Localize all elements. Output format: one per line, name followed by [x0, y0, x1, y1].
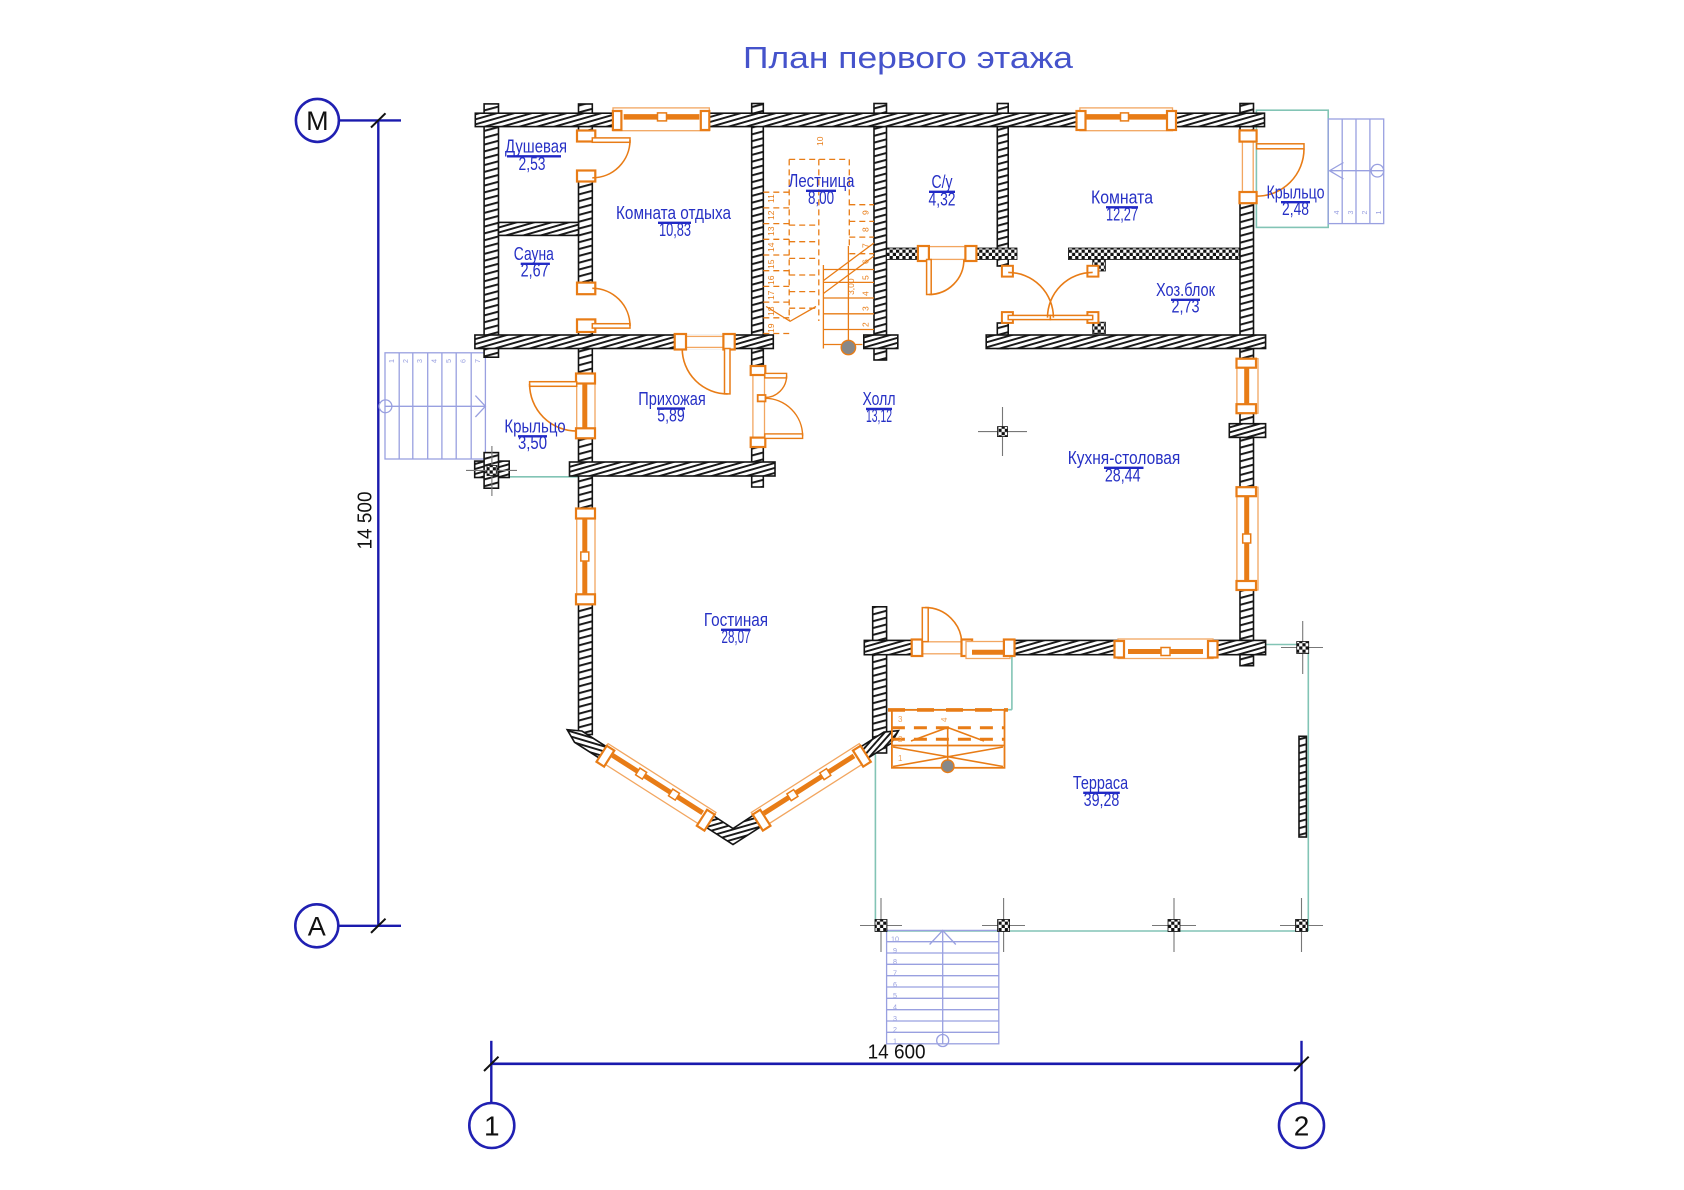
svg-text:2: 2 [898, 735, 903, 744]
svg-text:2,73: 2,73 [1172, 296, 1200, 317]
svg-text:2,48: 2,48 [1282, 198, 1309, 219]
svg-text:14: 14 [766, 242, 776, 252]
svg-text:28,07: 28,07 [722, 626, 751, 647]
svg-text:6: 6 [893, 980, 897, 989]
svg-text:19: 19 [766, 323, 776, 333]
svg-text:10,83: 10,83 [659, 219, 691, 240]
svg-text:2: 2 [1360, 211, 1369, 215]
svg-text:3: 3 [861, 306, 871, 311]
svg-text:7: 7 [861, 243, 871, 248]
svg-text:4: 4 [1332, 211, 1341, 215]
svg-text:4: 4 [430, 359, 439, 363]
svg-text:11: 11 [766, 194, 776, 203]
svg-text:2,67: 2,67 [521, 260, 549, 281]
svg-text:7: 7 [893, 969, 897, 978]
svg-text:3,00: 3,00 [846, 278, 856, 295]
svg-text:1: 1 [898, 754, 903, 763]
svg-text:9: 9 [893, 946, 897, 955]
svg-text:17: 17 [766, 290, 776, 300]
svg-text:1: 1 [387, 359, 396, 363]
svg-text:1: 1 [1374, 211, 1383, 215]
svg-text:9: 9 [861, 210, 871, 215]
svg-text:План первого этажа: План первого этажа [743, 40, 1074, 75]
svg-text:3: 3 [1346, 211, 1355, 215]
svg-text:А: А [308, 911, 326, 941]
svg-text:5,89: 5,89 [657, 405, 685, 426]
svg-text:3: 3 [893, 1014, 897, 1023]
svg-text:12,27: 12,27 [1106, 204, 1138, 225]
svg-text:7: 7 [473, 359, 482, 363]
svg-text:2: 2 [861, 322, 871, 327]
svg-text:18: 18 [766, 306, 776, 316]
svg-text:2: 2 [893, 1025, 897, 1034]
svg-text:8: 8 [861, 227, 871, 232]
svg-text:3: 3 [898, 715, 903, 724]
svg-text:16: 16 [766, 275, 776, 285]
svg-text:2,53: 2,53 [519, 153, 546, 174]
svg-text:8,00: 8,00 [808, 187, 834, 208]
svg-text:28,44: 28,44 [1105, 465, 1141, 486]
svg-text:10: 10 [815, 136, 825, 146]
svg-text:5: 5 [444, 359, 453, 363]
svg-text:13,12: 13,12 [866, 405, 892, 426]
svg-text:4: 4 [893, 1003, 897, 1012]
svg-text:6: 6 [861, 259, 871, 264]
svg-text:М: М [306, 106, 329, 136]
svg-text:8: 8 [893, 957, 897, 966]
svg-text:5: 5 [861, 275, 871, 280]
svg-text:2: 2 [401, 359, 410, 363]
svg-text:5: 5 [893, 991, 897, 1000]
svg-text:14 500: 14 500 [355, 492, 377, 550]
svg-text:4: 4 [861, 291, 871, 296]
svg-text:13: 13 [766, 226, 776, 236]
svg-text:1: 1 [484, 1111, 500, 1142]
svg-text:12: 12 [766, 210, 776, 220]
svg-text:1: 1 [893, 1036, 897, 1045]
svg-text:4: 4 [940, 717, 949, 722]
svg-text:2: 2 [1294, 1111, 1310, 1142]
svg-text:3,50: 3,50 [518, 432, 547, 453]
svg-text:3: 3 [415, 359, 424, 363]
svg-text:4,32: 4,32 [929, 189, 956, 210]
svg-text:6: 6 [459, 359, 468, 363]
svg-text:15: 15 [766, 259, 776, 269]
svg-text:39,28: 39,28 [1084, 789, 1120, 810]
svg-text:10: 10 [891, 935, 899, 944]
